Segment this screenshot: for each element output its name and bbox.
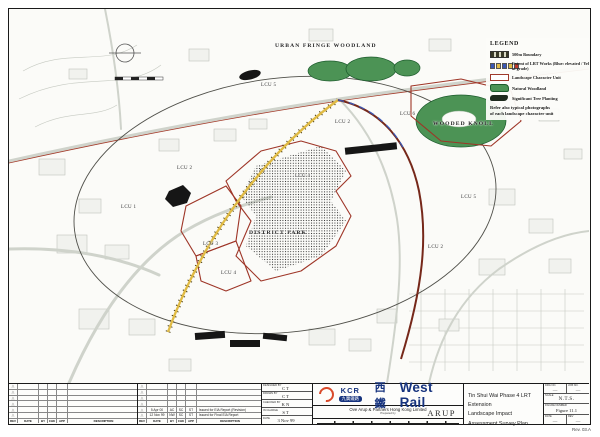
legend-item: Natural Woodland	[490, 84, 589, 92]
legend-item: 500m Boundary	[490, 51, 589, 58]
legend-item-label: Landscape Character Unit	[512, 75, 561, 80]
signature-row: DESIGNED BYCT	[262, 384, 312, 392]
map-label-lcu-2-east: LCU 2	[428, 245, 443, 250]
map-label-district-park: DISTRICT PARK	[249, 230, 307, 236]
natural-woodland	[308, 57, 506, 147]
legend-note: Refer also typical photographs of each l…	[490, 105, 589, 117]
field-job-no: JOB NO.—	[567, 384, 589, 393]
map-label-lcu-1: LCU 1	[121, 205, 136, 210]
field-date: DATE—	[544, 415, 567, 424]
legend-item-label: Extent of LRT Works (Blue: elevated / Ye…	[512, 61, 589, 71]
legend-symbol-500m-boundary	[490, 51, 509, 58]
titleblock-scale-ruler	[317, 419, 459, 424]
field-scale: SCALEN.T.S.	[544, 394, 589, 403]
drawing-title-line1: Tin Shui Wai Phase 4 LRT Extension	[468, 392, 540, 410]
drawing-sheet: { "page": { "rev_note": "Rev. 03.A" }, "…	[0, 0, 600, 437]
legend-item: Significant Tree Planting	[490, 95, 589, 101]
map-label-lcu-4: LCU 4	[295, 174, 310, 179]
signature-row: IN CHARGEST	[262, 408, 312, 416]
legend-title: LEGEND	[490, 41, 589, 47]
revision-table-right: 5 Apr 00 AC SC ST Issued for EIA Report …	[138, 384, 262, 424]
revision-header-row: REVDATE BYCHK APPDESCRIPTION	[9, 419, 137, 424]
legend-item: Extent of LRT Works (Blue: elevated / Ye…	[490, 61, 589, 71]
survey-map: URBAN FRINGE WOODLAND LCU 5 LCU 2 LCU 6 …	[9, 9, 589, 383]
kcr-wordmark: KCR	[341, 387, 360, 395]
title-strip: REVDATE BYCHK APPDESCRIPTION 5 Apr 00 AC…	[9, 383, 589, 424]
legend-symbol-significant-tree-planting	[490, 95, 508, 101]
legend-item: Landscape Character Unit	[490, 74, 589, 81]
revision-marker-icon	[138, 407, 147, 412]
map-label-wooded-knoll: WOODED KNOLL	[433, 121, 494, 127]
field-figure-number: FIGURE NUMBERFigure 11.1	[544, 404, 589, 414]
map-label-lcu-2-north: LCU 2	[335, 120, 350, 125]
legend-symbol-landscape-character-unit	[490, 74, 509, 81]
drawing-info-fields: DRG NO.— JOB NO.— SCALEN.T.S. FIGURE NUM…	[544, 384, 589, 424]
signature-row: DRAWN BYCT	[262, 392, 312, 400]
drawing-title: Tin Shui Wai Phase 4 LRT Extension Lands…	[464, 384, 544, 424]
signature-row: CHECKED BYKN	[262, 400, 312, 408]
westrail-wordmark: West Rail	[400, 380, 457, 410]
sheet-rev-note: Rev. 03.A	[572, 427, 591, 432]
map-label-lcu-5-east: LCU 5	[461, 195, 476, 200]
branding-block: KCR 九廣鐵路 西鐵 West Rail Ove Arup & Partner…	[313, 384, 464, 424]
kcr-westrail-logo: KCR 九廣鐵路 西鐵 West Rail	[313, 384, 463, 406]
kcr-swirl-icon	[316, 384, 337, 405]
revision-header-row: REVDATE BYCHK APPDESCRIPTION	[138, 419, 261, 424]
sheet-border: URBAN FRINGE WOODLAND LCU 5 LCU 2 LCU 6 …	[8, 8, 591, 425]
scale-bar	[115, 77, 163, 80]
arup-block: Ove Arup & Partners Hong Kong Limited Pr…	[313, 406, 463, 419]
signature-row: DATE3 Nov 99	[262, 416, 312, 423]
map-label-lcu-4-south: LCU 4	[221, 271, 236, 276]
legend-symbol-natural-woodland	[490, 84, 509, 92]
district-park-area	[241, 146, 346, 271]
map-label-lcu-3: LCU 3	[203, 242, 218, 247]
field-rev: REV—	[567, 415, 589, 424]
drawing-title-line2: Landscape Impact Assessment Survey Plan	[468, 410, 540, 428]
map-label-lcu-2-west: LCU 2	[177, 166, 192, 171]
revision-table-left: REVDATE BYCHK APPDESCRIPTION	[9, 384, 138, 424]
field-drg-no: DRG NO.—	[544, 384, 567, 393]
legend-item-label: 500m Boundary	[512, 52, 542, 57]
signature-block: DESIGNED BYCT DRAWN BYCT CHECKED BYKN IN…	[262, 384, 313, 424]
legend: LEGEND 500m Boundary Extent of LRT Works…	[486, 38, 589, 120]
legend-item-label: Natural Woodland	[512, 86, 546, 91]
map-label-urban-fringe-woodland: URBAN FRINGE WOODLAND	[275, 43, 377, 49]
revision-marker-icon	[138, 413, 147, 418]
kcr-chinese-label: 九廣鐵路	[339, 396, 362, 402]
arup-logo: ARUP	[427, 408, 456, 418]
map-label-lcu-6: LCU 6	[400, 112, 415, 117]
map-label-lcu-5: LCU 5	[261, 83, 276, 88]
legend-item-label: Significant Tree Planting	[512, 96, 558, 101]
